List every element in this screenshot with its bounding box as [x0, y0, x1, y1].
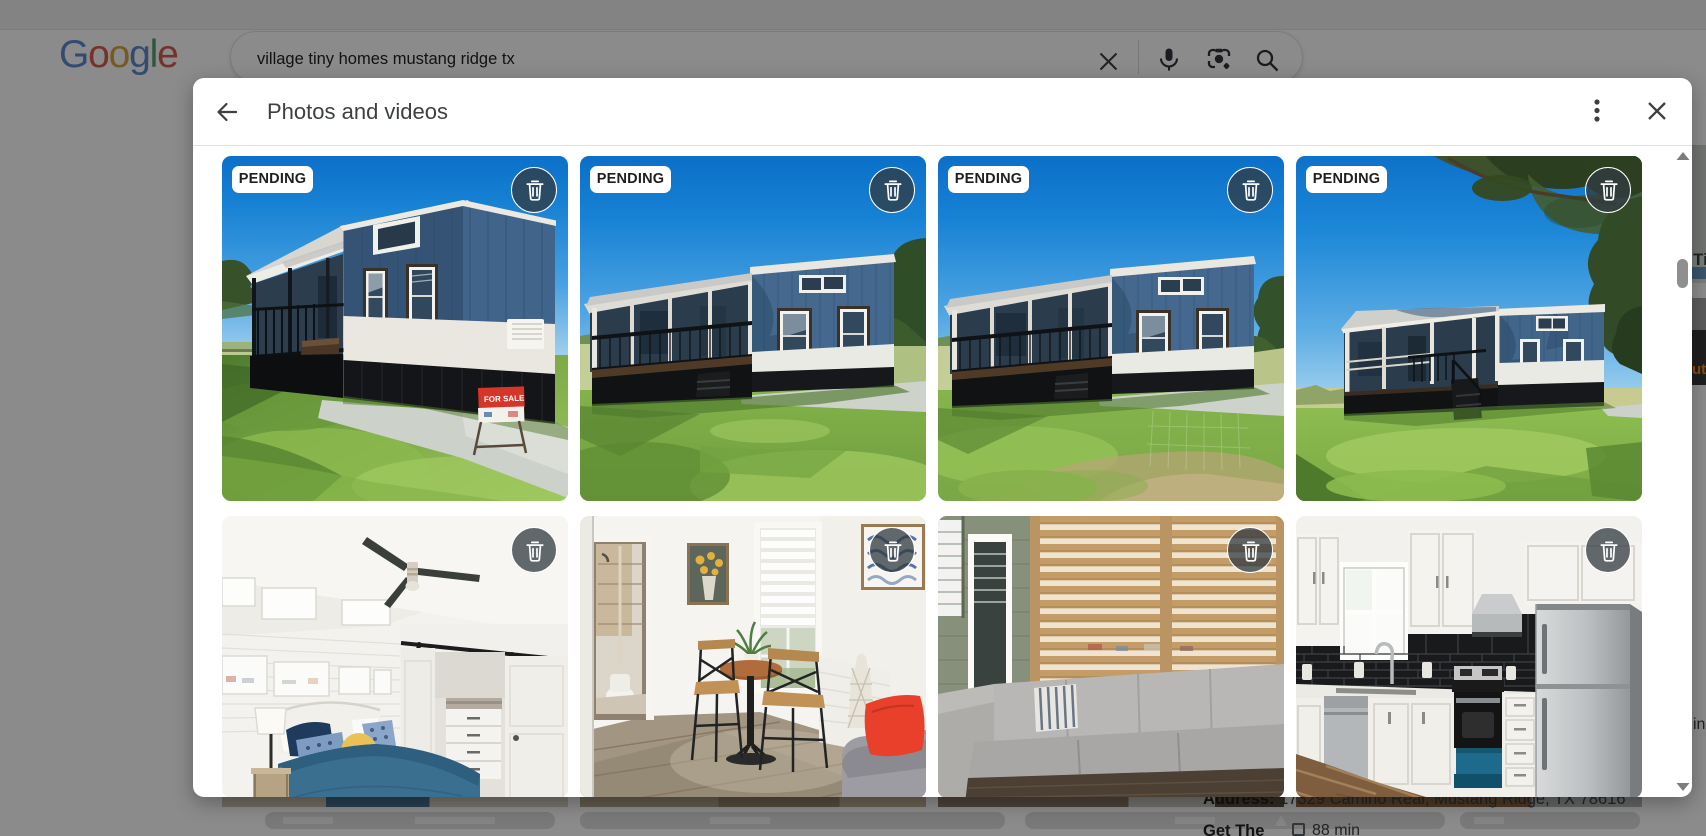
- svg-text:FOR SALE: FOR SALE: [484, 393, 525, 403]
